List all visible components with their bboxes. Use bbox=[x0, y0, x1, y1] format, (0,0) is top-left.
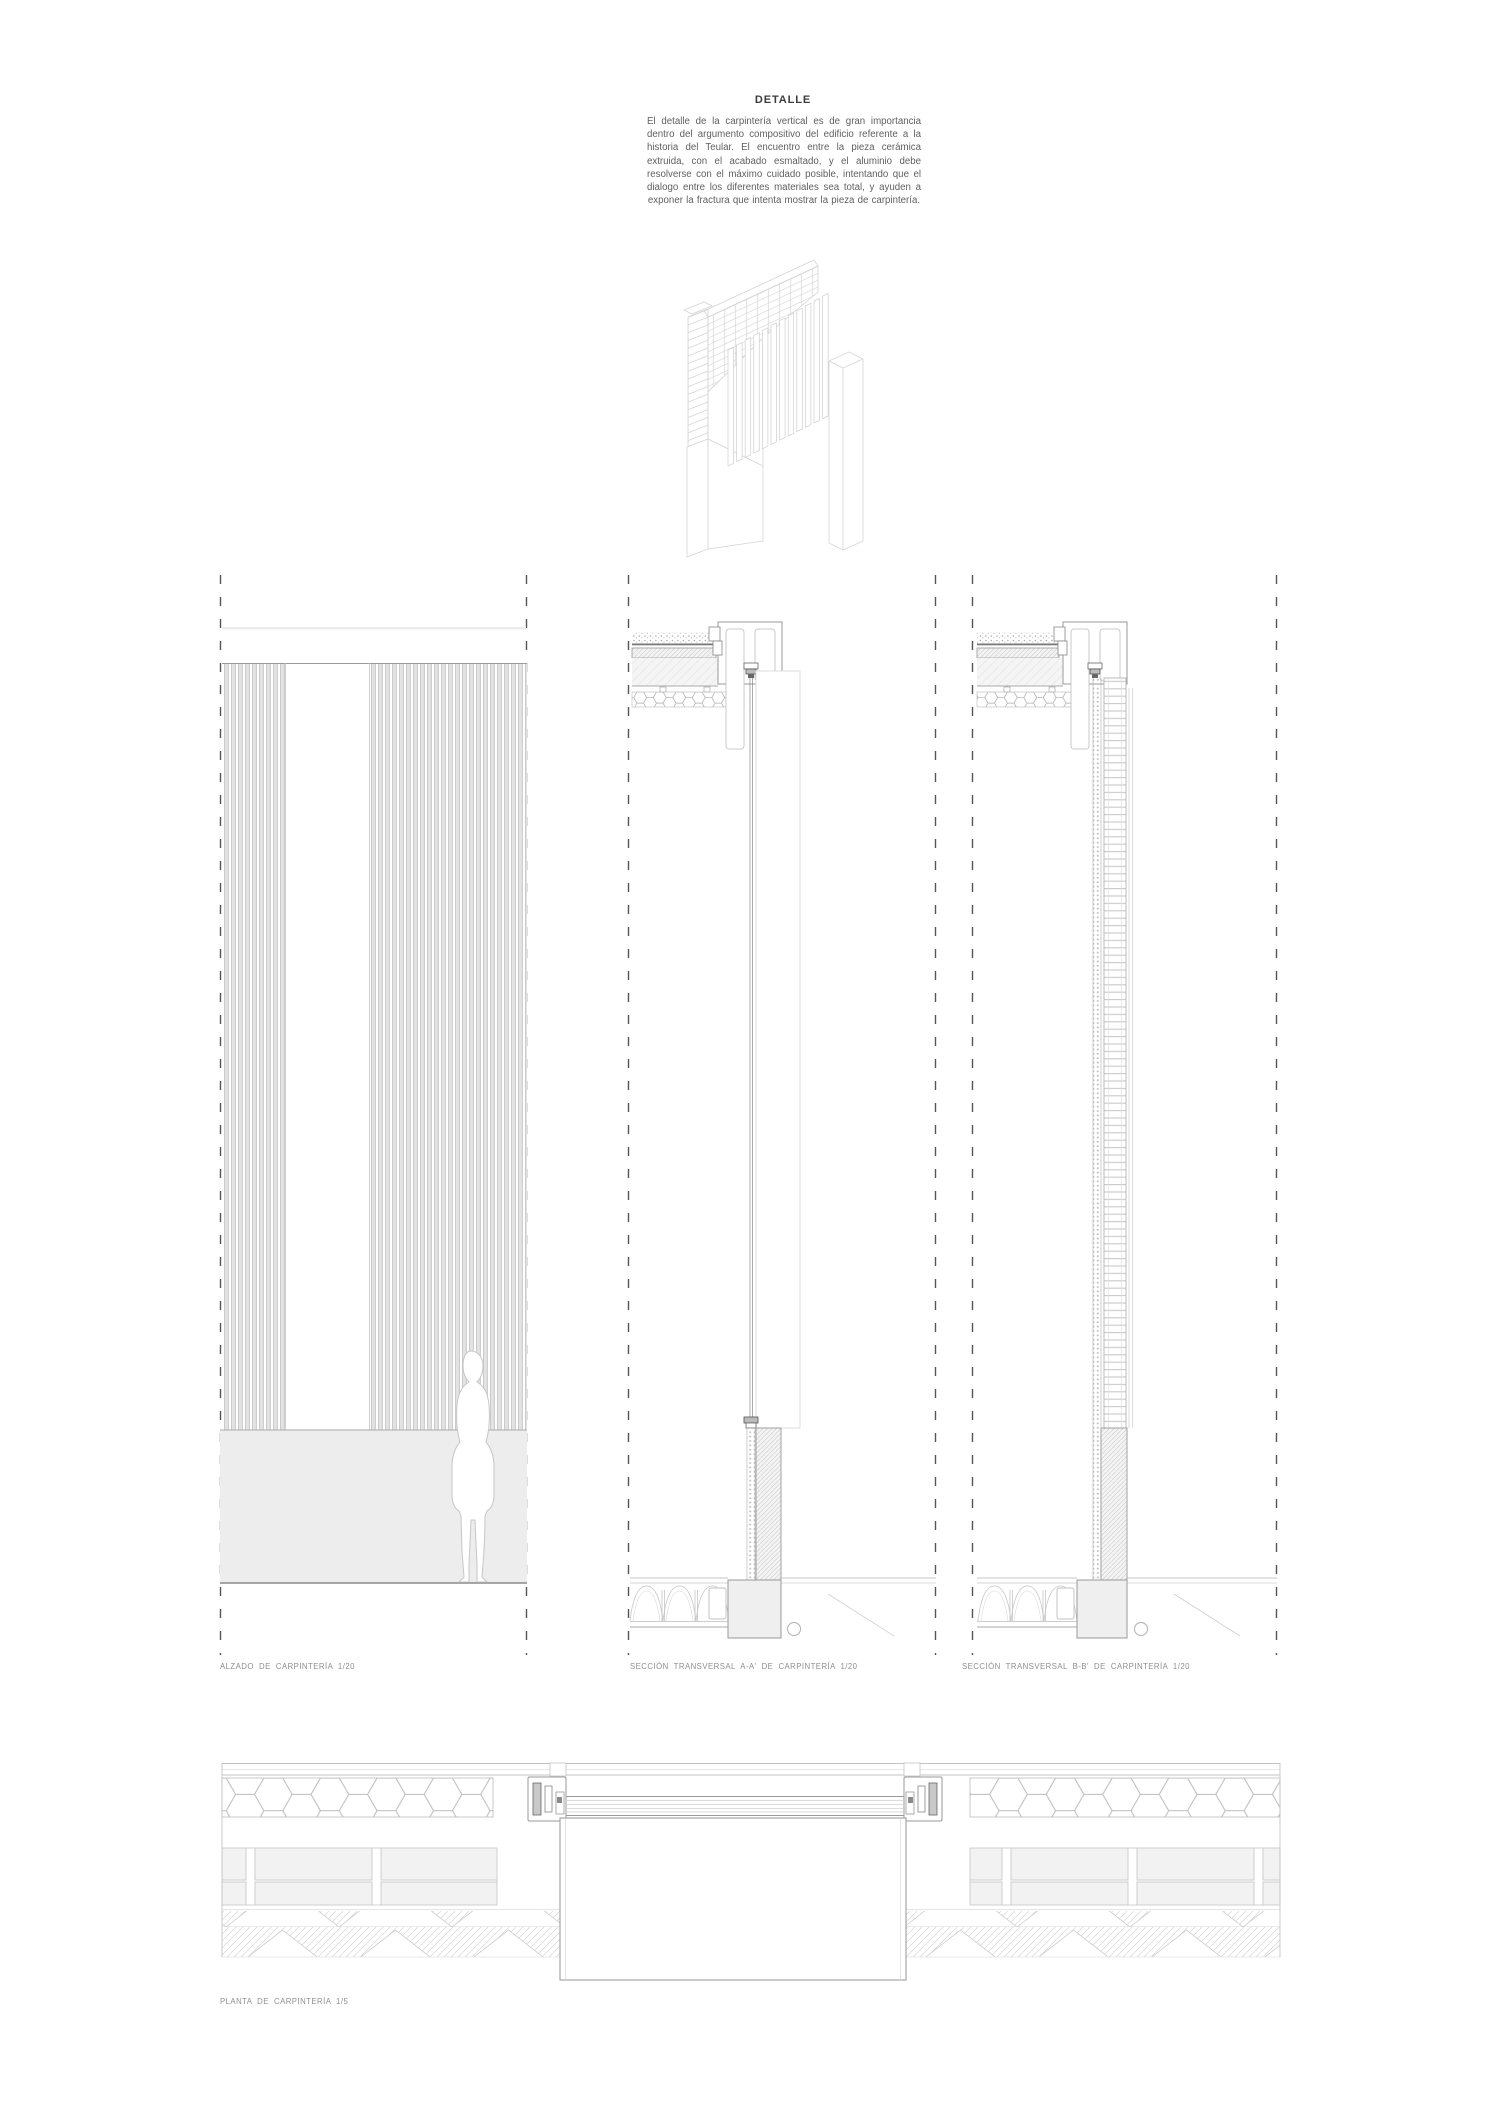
section-bb-drawing bbox=[955, 570, 1290, 1660]
plan-drawing bbox=[215, 1740, 1290, 1990]
elevation-label: ALZADO DE CARPINTERÍA 1/20 bbox=[220, 1662, 355, 1671]
section-aa-label: SECCIÓN TRANSVERSAL A-A' DE CARPINTERÍA … bbox=[630, 1662, 857, 1671]
drawing-sheet: DETALLE El detalle de la carpintería ver… bbox=[0, 0, 1500, 2124]
page-title: DETALLE bbox=[755, 94, 811, 106]
plan-label: PLANTA DE CARPINTERÍA 1/5 bbox=[220, 1997, 348, 2006]
section-bb-label: SECCIÓN TRANSVERSAL B-B' DE CARPINTERÍA … bbox=[962, 1662, 1190, 1671]
section-aa-drawing bbox=[615, 570, 955, 1660]
glazing-lines bbox=[566, 1797, 904, 1816]
axonometric-detail-drawing bbox=[655, 250, 905, 565]
left-frame-profile bbox=[528, 1777, 566, 1821]
right-frame-profile bbox=[904, 1777, 942, 1821]
elevation-drawing bbox=[205, 570, 550, 1660]
intro-paragraph: El detalle de la carpintería vertical es… bbox=[647, 115, 921, 207]
door-leaf bbox=[560, 1818, 906, 1980]
